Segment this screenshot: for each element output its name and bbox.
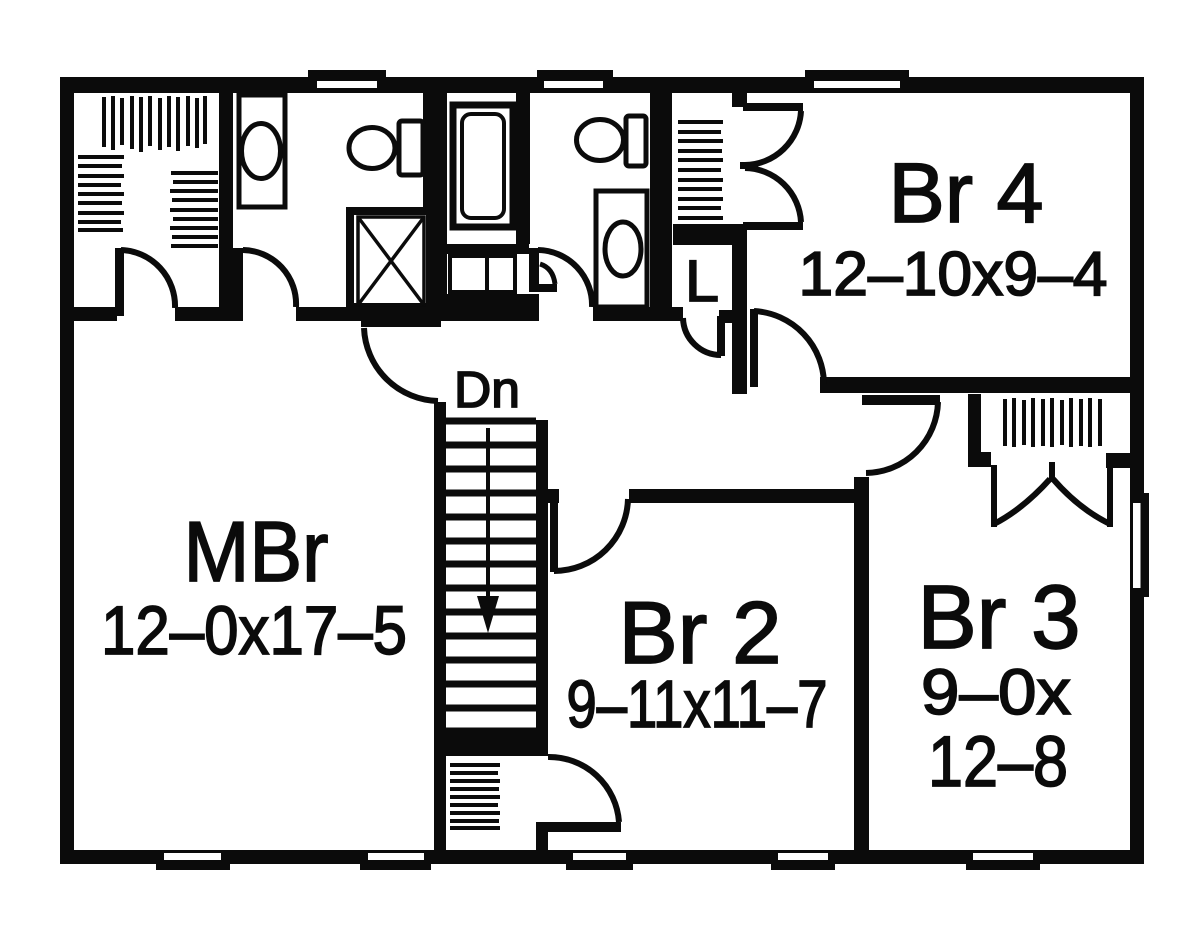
svg-text:L: L — [685, 249, 719, 314]
svg-text:MBr: MBr — [184, 505, 329, 600]
svg-text:9–11x11–7: 9–11x11–7 — [567, 667, 828, 742]
svg-text:Dn: Dn — [454, 361, 520, 418]
svg-text:12–0x17–5: 12–0x17–5 — [101, 592, 407, 669]
svg-text:Br 3: Br 3 — [918, 568, 1081, 668]
svg-text:12–8: 12–8 — [928, 723, 1068, 802]
svg-text:9–0x: 9–0x — [921, 656, 1071, 728]
svg-text:12–10x9–4: 12–10x9–4 — [799, 240, 1108, 309]
svg-text:Br 4: Br 4 — [889, 146, 1044, 240]
